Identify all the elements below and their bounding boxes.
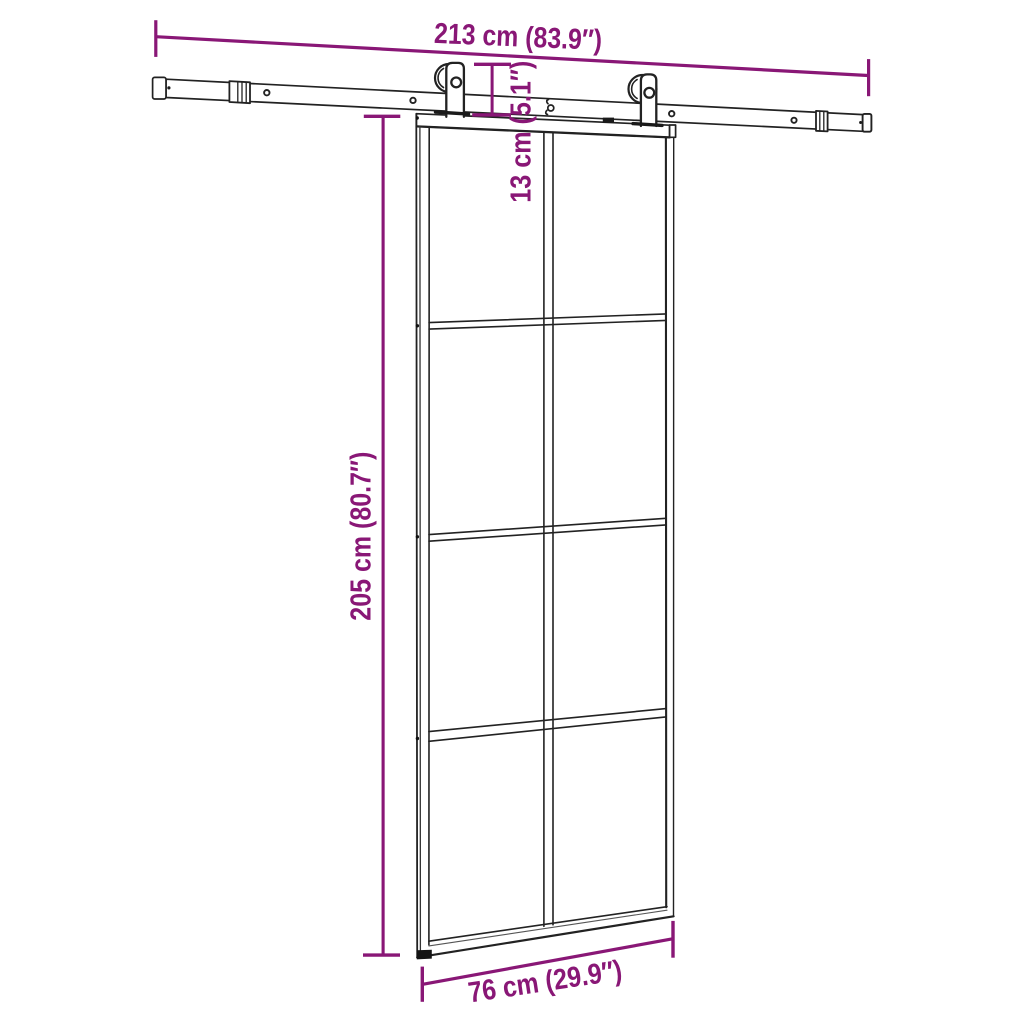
svg-text:13 cm (5.1″): 13 cm (5.1″)	[506, 61, 538, 203]
svg-text:205 cm (80.7″): 205 cm (80.7″)	[346, 452, 378, 621]
